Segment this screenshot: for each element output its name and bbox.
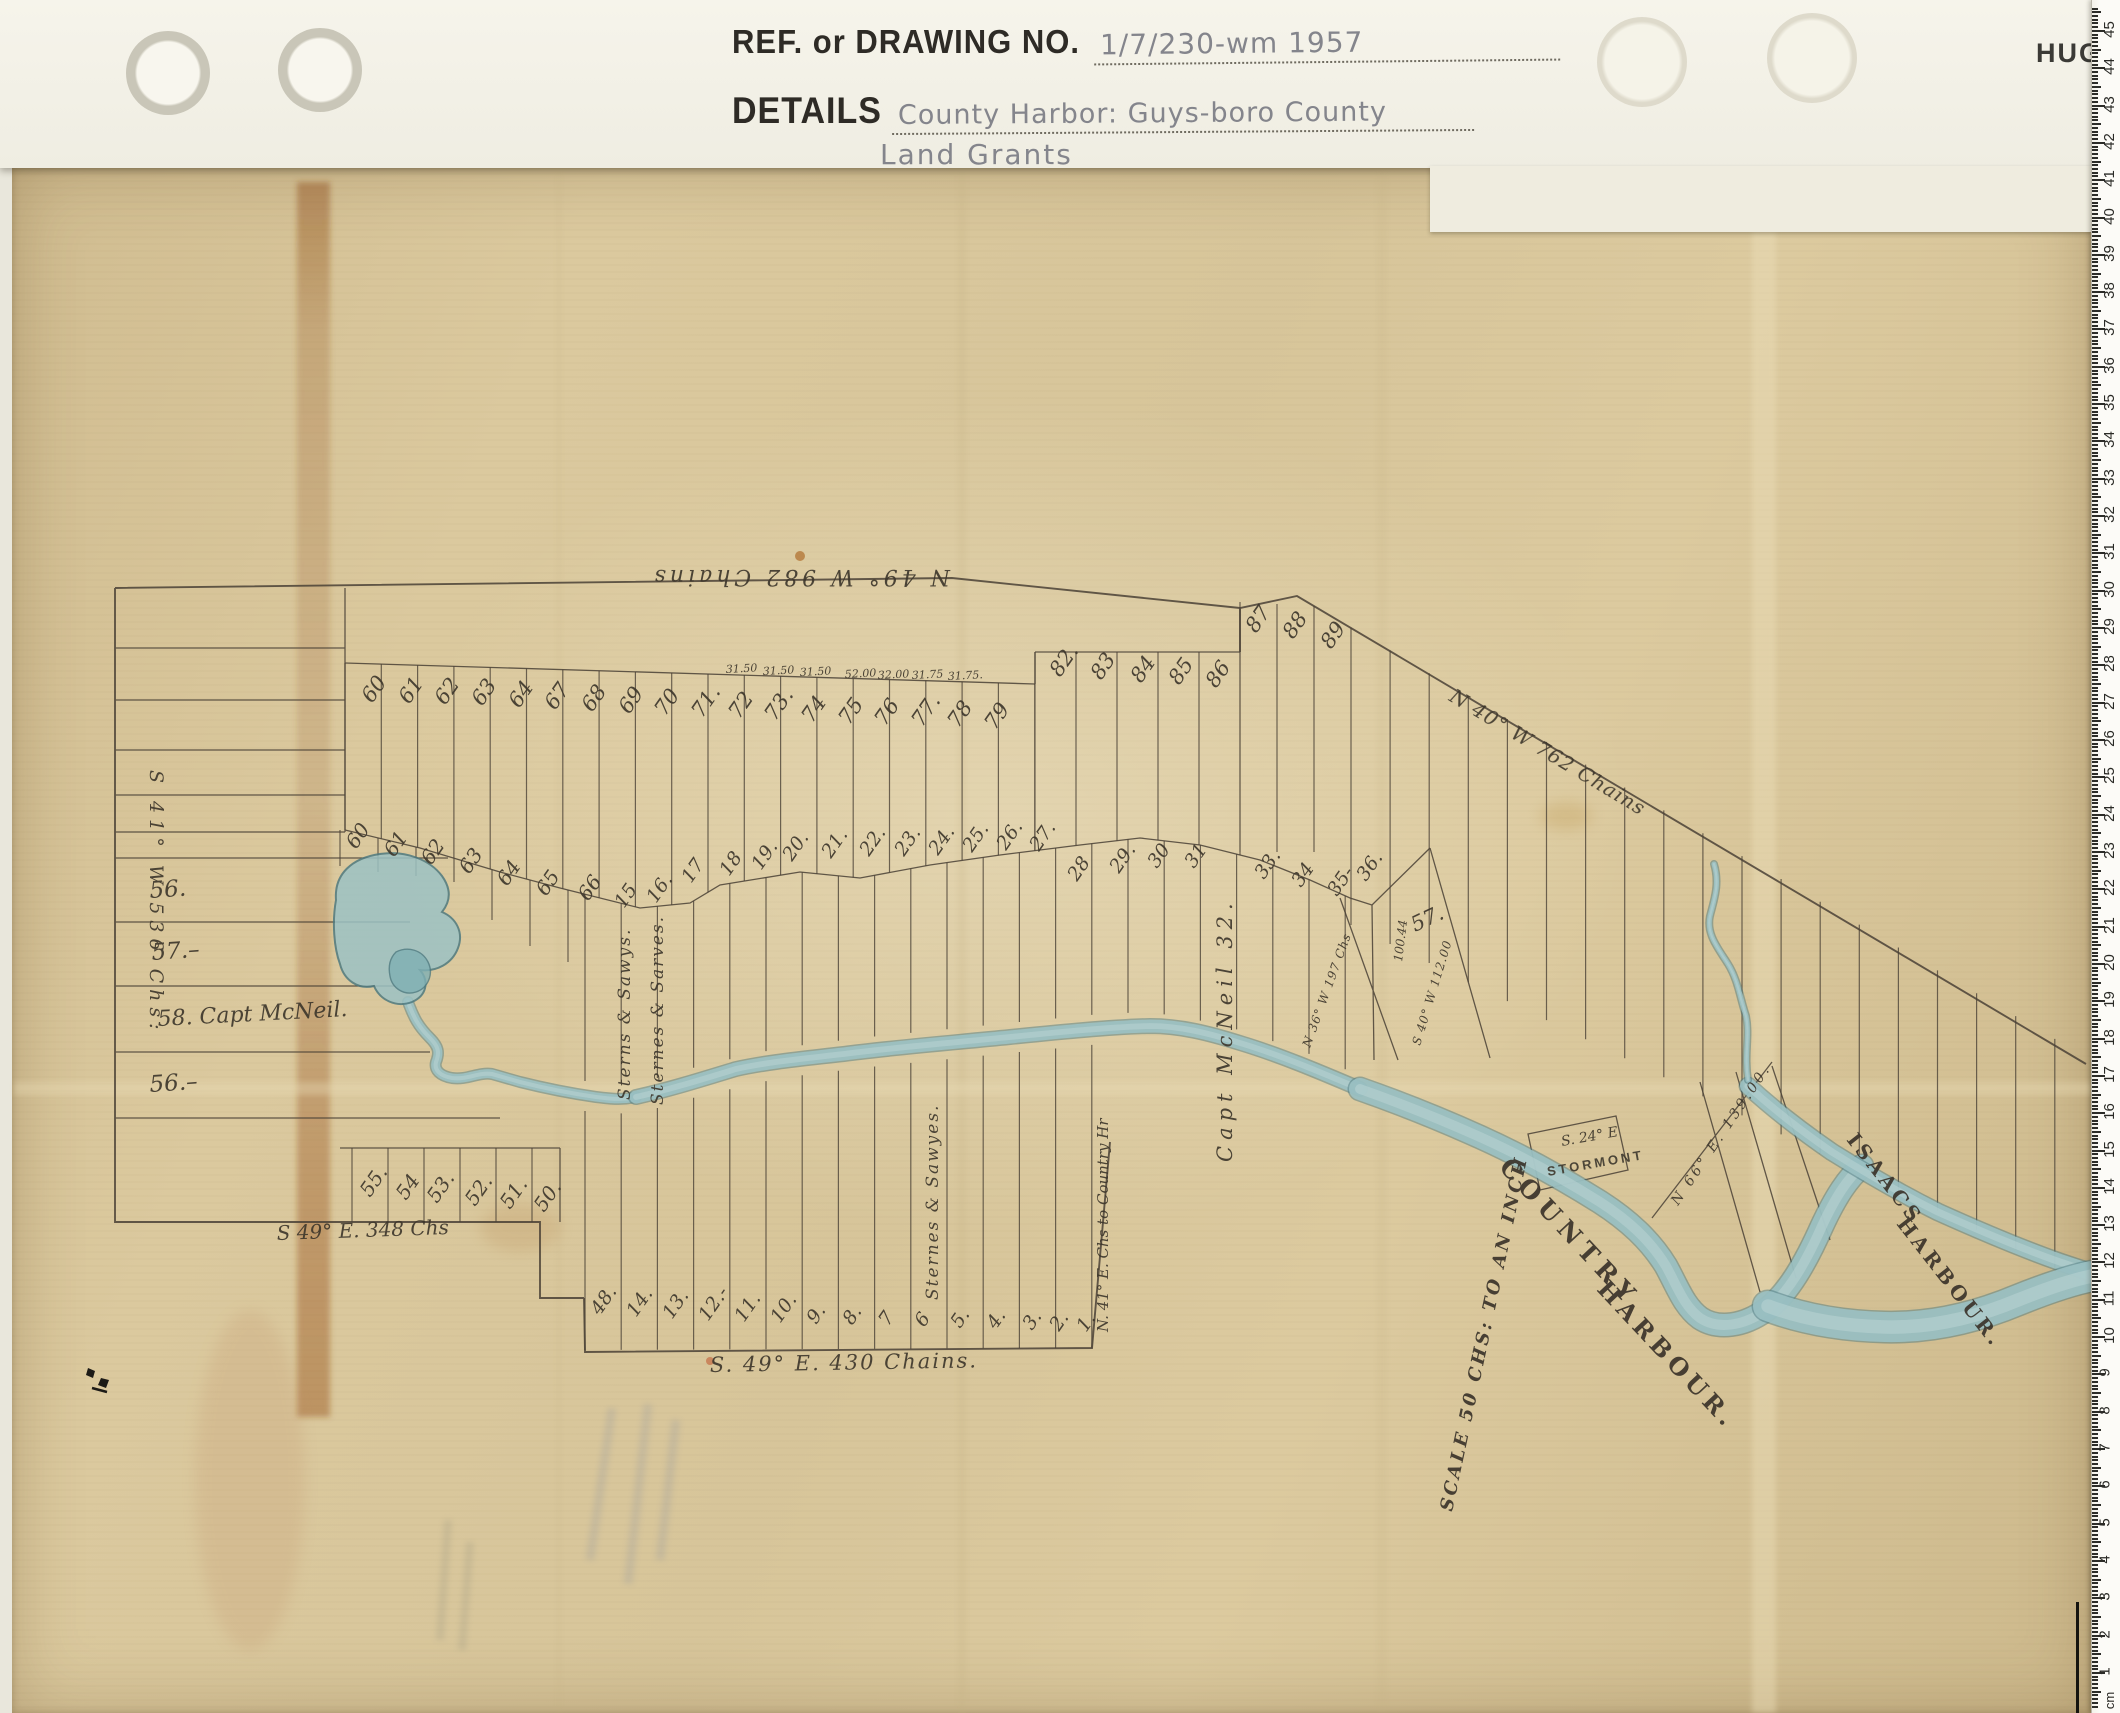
ruler-tick	[2092, 97, 2098, 99]
ruler-tick	[2092, 1691, 2101, 1693]
ruler-tick	[2092, 705, 2098, 707]
ruler-tick	[2092, 202, 2098, 204]
ruler-tick	[2092, 608, 2101, 610]
ruler-tick	[2092, 1161, 2098, 1163]
ruler-tick	[2092, 45, 2098, 47]
ruler-tick	[2092, 138, 2098, 140]
ruler-number: 29	[2101, 618, 2118, 635]
ruler-tick	[2092, 1698, 2098, 1700]
ruler-tick	[2092, 261, 2098, 263]
ruler-tick	[2092, 1056, 2101, 1058]
ruler-tick	[2092, 556, 2098, 558]
ruler-tick	[2092, 791, 2098, 793]
ruler-tick	[2092, 8, 2098, 10]
ruler-tick	[2092, 243, 2098, 245]
ruler-number: 42	[2101, 133, 2118, 150]
ruler-number: 34	[2101, 432, 2118, 449]
ruler-tick	[2092, 1616, 2101, 1618]
ruler-tick	[2092, 623, 2098, 625]
ruler-number: 21	[2101, 917, 2118, 934]
ruler-tick	[2092, 1541, 2101, 1543]
ruler-tick	[2092, 985, 2098, 987]
ruler-tick	[2092, 1456, 2098, 1458]
ruler-tick	[2092, 885, 2098, 887]
ruler-tick	[2092, 601, 2098, 603]
ruler-tick	[2092, 1526, 2098, 1528]
map-label: 17	[677, 854, 709, 887]
ruler-tick	[2092, 370, 2098, 372]
map-label: 9.	[802, 1300, 830, 1327]
ruler-tick	[2092, 1094, 2101, 1096]
ruler-tick	[2092, 1497, 2098, 1499]
map-label: 89	[1315, 617, 1350, 653]
ruler-tick	[2092, 1586, 2098, 1588]
ruler-tick	[2092, 1120, 2098, 1122]
ruler-tick	[2092, 1512, 2098, 1514]
ruler-tick	[2092, 795, 2101, 797]
ruler-number: 26	[2101, 730, 2118, 747]
ruler-number: 33	[2101, 469, 2118, 486]
ruler-tick	[2092, 1213, 2098, 1215]
ruler-tick	[2092, 579, 2098, 581]
ruler-tick	[2092, 149, 2098, 151]
ruler-tick	[2092, 944, 2101, 946]
details-label: DETAILS	[732, 90, 882, 132]
ruler-tick	[2092, 161, 2101, 163]
ruler-tick	[2092, 295, 2098, 297]
map-label: 64	[503, 676, 538, 712]
ruler-tick	[2092, 1194, 2098, 1196]
ruler-tick	[2092, 937, 2098, 939]
ruler-tick	[2092, 153, 2098, 155]
map-label: 60	[356, 671, 391, 707]
ruler-number: 32	[2101, 506, 2118, 523]
ruler-tick	[2092, 1579, 2101, 1581]
ruler-tick	[2092, 485, 2098, 487]
ruler-number: 36	[2101, 357, 2118, 374]
ruler-tick	[2092, 1627, 2098, 1629]
ruler-tick	[2092, 1388, 2098, 1390]
ruler-tick	[2092, 1638, 2098, 1640]
ruler-tick	[2092, 1034, 2098, 1036]
ruler-tick	[2092, 1553, 2098, 1555]
ruler-tick	[2092, 836, 2098, 838]
map-label: 57.–	[151, 937, 201, 966]
ruler-tick	[2092, 1153, 2098, 1155]
ruler-tick	[2092, 265, 2098, 267]
ruler-tick	[2092, 452, 2098, 454]
map-label: N. 41° E. Chs to Country Hr	[1094, 1118, 1112, 1333]
map-label: 70	[649, 684, 684, 720]
ruler-tick	[2092, 343, 2098, 345]
ruler-tick	[2092, 1250, 2098, 1252]
ruler-tick	[2092, 903, 2098, 905]
ruler-tick	[2092, 1086, 2098, 1088]
ruler-tick	[2092, 321, 2098, 323]
ruler-number: 20	[2101, 954, 2118, 971]
map-label: 55.	[354, 1161, 392, 1201]
ruler-tick	[2092, 273, 2101, 275]
ruler-tick	[2092, 119, 2098, 121]
ruler-number: 11	[2100, 1291, 2117, 1307]
ruler-tick	[2092, 1067, 2098, 1069]
map-label: 72	[723, 687, 758, 723]
ruler-tick	[2092, 250, 2098, 252]
ruler-tick	[2092, 829, 2098, 831]
ruler-tick	[2092, 549, 2098, 551]
ruler-tick	[2092, 56, 2098, 58]
ruler-tick	[2092, 1202, 2098, 1204]
ruler-number: 25	[2101, 767, 2118, 784]
ruler-tick	[2092, 60, 2098, 62]
backing-sheet	[1430, 166, 2092, 232]
ruler-tick	[2092, 112, 2098, 114]
map-label: 22.	[855, 822, 891, 860]
ruler-tick	[2092, 825, 2098, 827]
ruler-tick	[2092, 1314, 2098, 1316]
map-label: 34	[1287, 858, 1319, 890]
ruler-tick	[2092, 541, 2098, 543]
ruler-tick	[2092, 172, 2098, 174]
ruler-number: 3	[2097, 1593, 2114, 1601]
ruler-tick	[2092, 765, 2098, 767]
ruler-tick	[2092, 1325, 2098, 1327]
ruler-tick	[2092, 676, 2098, 678]
ruler-number: 41	[2101, 170, 2118, 187]
ruler-tick	[2092, 340, 2098, 342]
ruler-tick	[2092, 982, 2101, 984]
ruler-tick	[2092, 1135, 2098, 1137]
ruler-tick	[2092, 1508, 2098, 1510]
ruler-tick	[2092, 784, 2098, 786]
ruler-tick	[2092, 1623, 2098, 1625]
ruler-tick	[2092, 22, 2098, 24]
ruler-tick	[2092, 1235, 2098, 1237]
ruler-tick	[2092, 754, 2098, 756]
ruler-tick	[2092, 1105, 2098, 1107]
ruler-tick	[2092, 429, 2098, 431]
ref-label: REF. or DRAWING NO.	[732, 23, 1080, 62]
ruler-tick	[2092, 679, 2098, 681]
ruler-tick	[2092, 325, 2098, 327]
ruler-tick	[2092, 1179, 2098, 1181]
ruler-tick	[2092, 717, 2098, 719]
ruler-tick	[2092, 381, 2098, 383]
ruler-number: 40	[2101, 208, 2118, 225]
map-label: 78	[942, 696, 977, 732]
map-label: 75	[833, 693, 868, 729]
ruler-tick	[2092, 1676, 2098, 1678]
ruler-number: 10	[2101, 1327, 2118, 1344]
ruler-tick	[2092, 1116, 2098, 1118]
ruler-tick	[2092, 418, 2098, 420]
ruler-number: 35	[2101, 394, 2118, 411]
ruler-number: 2	[2097, 1630, 2114, 1638]
ruler-tick	[2092, 635, 2098, 637]
ruler-tick	[2092, 355, 2098, 357]
ruler-number: 23	[2101, 842, 2118, 859]
ruler-tick	[2092, 64, 2098, 66]
ref-row: REF. or DRAWING NO.1/7/230-wm 1957	[732, 24, 1560, 63]
map-label: 6	[910, 1308, 935, 1331]
ruler-tick	[2092, 993, 2098, 995]
map-label: 52.00	[844, 666, 876, 681]
ruler-tick	[2092, 220, 2098, 222]
ruler-tick	[2092, 1108, 2098, 1110]
ruler-tick	[2092, 1198, 2098, 1200]
ruler-tick	[2092, 276, 2098, 278]
ruler-tick	[2092, 1694, 2098, 1696]
ruler-tick	[2092, 246, 2098, 248]
ruler-number: 22	[2101, 879, 2118, 896]
ruler-tick	[2092, 1347, 2098, 1349]
ruler-tick	[2092, 661, 2098, 663]
ruler-tick	[2092, 735, 2098, 737]
ruler-tick	[2092, 690, 2098, 692]
ruler-tick	[2092, 1433, 2098, 1435]
ruler-tick	[2092, 1183, 2098, 1185]
ruler-tick	[2092, 205, 2098, 207]
ruler-tick	[2092, 1209, 2098, 1211]
ruler-tick	[2092, 582, 2098, 584]
ruler-tick	[2092, 1385, 2098, 1387]
ruler-tick	[2092, 75, 2098, 77]
ruler-tick	[2092, 302, 2098, 304]
map-label: 64	[491, 855, 525, 890]
ruler-tick	[2092, 1101, 2098, 1103]
ruler-tick	[2092, 332, 2098, 334]
ruler-number: 43	[2101, 96, 2118, 113]
ruler-tick	[2092, 164, 2098, 166]
map-label: 100.44	[1391, 919, 1410, 962]
map-label: 12.-	[694, 1282, 733, 1325]
map-label: 71.	[686, 681, 725, 722]
ruler-tick	[2092, 347, 2101, 349]
ruler-tick	[2092, 437, 2098, 439]
ruler-tick	[2092, 855, 2098, 857]
map-label: 31	[1180, 839, 1212, 871]
ruler-tick	[2092, 534, 2101, 536]
map-label: Capt McNeil 32.	[1213, 897, 1237, 1162]
ruler-tick	[2092, 694, 2098, 696]
ruler-tick	[2092, 146, 2098, 148]
ruler-tick	[2092, 1564, 2098, 1566]
ruler-tick	[2092, 746, 2098, 748]
ruler-tick	[2092, 511, 2098, 513]
ruler-tick	[2092, 728, 2098, 730]
ruler-tick	[2092, 508, 2098, 510]
ruler-tick	[2092, 862, 2098, 864]
ruler-tick	[2092, 1534, 2098, 1536]
ruler-tick	[2092, 847, 2098, 849]
punch-hole	[1767, 13, 1857, 103]
map-label: 66	[572, 870, 606, 905]
map-label: 3.	[1018, 1306, 1046, 1333]
ruler-tick	[2092, 1609, 2098, 1611]
ruler-number: 6	[2097, 1481, 2114, 1489]
ruler-tick	[2092, 970, 2098, 972]
ruler-tick	[2092, 806, 2098, 808]
ruler-tick	[2092, 108, 2098, 110]
ruler-tick	[2092, 832, 2101, 834]
ruler-tick	[2092, 974, 2098, 976]
ruler-tick	[2092, 127, 2098, 129]
ruler-tick	[2092, 1340, 2098, 1342]
map-label: 56.–	[149, 1069, 199, 1098]
ruler-number: 16	[2101, 1103, 2118, 1120]
ruler-number: 8	[2097, 1406, 2114, 1414]
ruler-tick	[2092, 1504, 2101, 1506]
ruler-tick	[2092, 1306, 2098, 1308]
ruler-tick	[2092, 157, 2098, 159]
map-label: HARBOUR.	[1592, 1274, 1744, 1434]
ruler-tick	[2092, 605, 2098, 607]
ruler-tick	[2092, 1452, 2098, 1454]
ruler-tick	[2092, 1441, 2098, 1443]
ruler-tick	[2092, 1026, 2098, 1028]
map-label: S. 24° E	[1560, 1124, 1619, 1150]
ruler-number: cm	[2102, 1692, 2117, 1709]
ruler-tick	[2092, 802, 2098, 804]
ruler-tick	[2092, 1665, 2098, 1667]
ruler-tick	[2092, 1661, 2098, 1663]
ruler-tick	[2092, 1429, 2101, 1431]
ruler-tick	[2092, 597, 2098, 599]
ruler-tick	[2092, 34, 2098, 36]
map-label: 53.	[421, 1167, 459, 1207]
ruler-tick	[2092, 1601, 2098, 1603]
map-label: 69	[613, 682, 648, 718]
map-label: 11.	[730, 1288, 765, 1325]
map-label: Sternes & Sarves.	[648, 915, 668, 1105]
map-label: STORMONT	[1546, 1147, 1645, 1179]
ruler-number: 38	[2101, 282, 2118, 299]
ruler-tick	[2092, 1176, 2098, 1178]
ruler-tick	[2092, 1239, 2098, 1241]
ruler-tick	[2092, 1049, 2098, 1051]
map-label: 31.50	[762, 663, 794, 678]
ruler-tick	[2092, 1414, 2098, 1416]
ruler-tick	[2092, 989, 2098, 991]
ruler-tick	[2092, 911, 2098, 913]
details-value-handwritten: County Harbor: Guys-boro County	[892, 96, 1474, 135]
ruler-tick	[2092, 881, 2098, 883]
details-row: DETAILSCounty Harbor: Guys-boro County	[732, 92, 1474, 133]
ruler-tick	[2092, 567, 2098, 569]
ruler-tick	[2092, 19, 2098, 21]
ruler-tick	[2092, 892, 2098, 894]
map-label: 63	[466, 674, 501, 710]
ruler-number: 5	[2097, 1518, 2114, 1526]
map-label: 56.	[149, 875, 187, 903]
ruler-tick	[2092, 41, 2098, 43]
map-label: 20.	[778, 827, 814, 865]
map-label: 18	[715, 847, 747, 879]
map-label: 57.	[1407, 901, 1447, 937]
map-label: 23.	[890, 822, 926, 860]
ruler-tick	[2092, 1019, 2101, 1021]
map-label: N 49° W 982 Chains	[651, 564, 951, 589]
map-label: 5.	[946, 1304, 974, 1331]
map-label: 30	[1143, 839, 1175, 871]
ruler-tick	[2092, 373, 2098, 375]
ruler-tick	[2092, 1258, 2098, 1260]
ruler-tick	[2092, 1657, 2098, 1659]
ruler-number: 19	[2101, 991, 2118, 1008]
punch-hole	[278, 28, 362, 112]
ruler-tick	[2092, 1568, 2098, 1570]
ruler-tick	[2092, 1011, 2098, 1013]
ruler-number: 27	[2101, 693, 2118, 710]
ruler-tick	[2092, 571, 2101, 573]
ruler-tick	[2092, 941, 2098, 943]
ruler-tick	[2092, 545, 2098, 547]
map-label: 73.	[759, 684, 798, 725]
ruler-tick	[2092, 455, 2098, 457]
ruler-tick	[2092, 1317, 2101, 1319]
ruler-tick	[2092, 1015, 2098, 1017]
map-label: 74	[796, 691, 831, 727]
ruler-tick	[2092, 657, 2098, 659]
ruler-tick	[2092, 1291, 2098, 1293]
ruler-tick	[2092, 1653, 2101, 1655]
ruler-tick	[2092, 1400, 2098, 1402]
ruler-tick	[2092, 1030, 2098, 1032]
ruler-tick	[2092, 198, 2101, 200]
ruler-tick	[2092, 1273, 2098, 1275]
index-card-header: REF. or DRAWING NO.1/7/230-wm 1957 DETAI…	[0, 0, 2092, 168]
ruler-number: 30	[2101, 581, 2118, 598]
ruler-tick	[2092, 649, 2098, 651]
ruler-tick	[2092, 287, 2098, 289]
map-label: N 40° W 762 Chains	[1445, 683, 1651, 820]
ruler-tick	[2092, 407, 2098, 409]
ruler-tick	[2092, 1329, 2098, 1331]
ruler-tick	[2092, 1362, 2098, 1364]
ruler-tick	[2092, 396, 2098, 398]
map-label: 28	[1063, 852, 1095, 885]
ruler-tick	[2092, 310, 2101, 312]
ruler-tick	[2092, 997, 2098, 999]
ruler-tick	[2092, 1545, 2098, 1547]
ruler-tick	[2092, 1474, 2098, 1476]
ruler-tick	[2092, 1650, 2098, 1652]
map-label: 13.	[658, 1285, 693, 1322]
ruler-tick	[2092, 1123, 2098, 1125]
ruler-tick	[2092, 750, 2098, 752]
ruler-tick	[2092, 713, 2098, 715]
ruler-tick	[2092, 388, 2098, 390]
ruler-tick	[2092, 1351, 2098, 1353]
ruler-number: 9	[2097, 1369, 2114, 1377]
map-label: 32.00	[877, 667, 909, 682]
ruler-tick	[2092, 1470, 2098, 1472]
ruler-tick	[2092, 877, 2098, 879]
ruler-tick	[2092, 530, 2098, 532]
ruler-tick	[2092, 967, 2098, 969]
ruler-number: 7	[2097, 1443, 2114, 1451]
ruler-tick	[2092, 896, 2098, 898]
ruler-tick	[2092, 1620, 2098, 1622]
ruler-tick	[2092, 1157, 2098, 1159]
ruler-tick	[2092, 362, 2098, 364]
ruler-tick	[2092, 1131, 2101, 1133]
ruler-number: 28	[2101, 656, 2118, 673]
ruler-tick	[2092, 1079, 2098, 1081]
map-label: 8.	[838, 1301, 866, 1328]
ruler-tick	[2092, 258, 2098, 260]
ruler-tick	[2092, 1247, 2098, 1249]
